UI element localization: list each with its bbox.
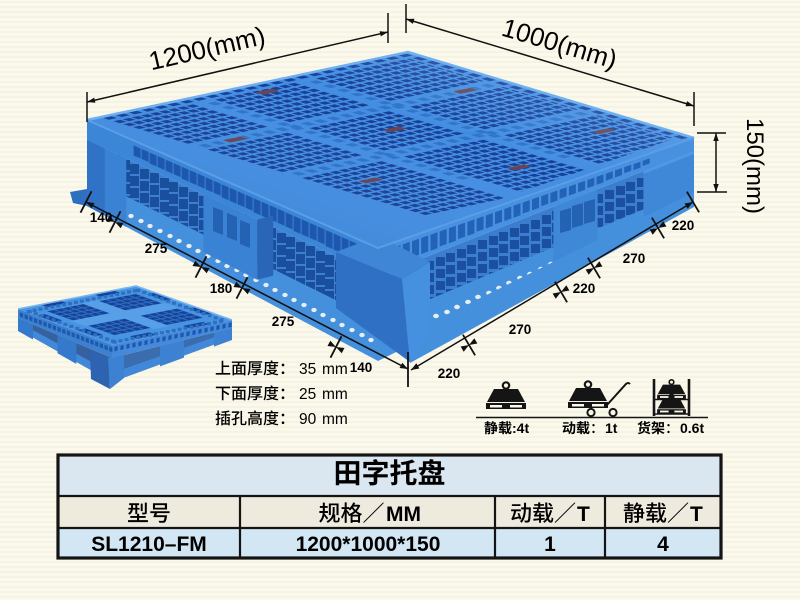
svg-text:270: 270 xyxy=(509,322,532,337)
svg-text:25: 25 xyxy=(299,386,316,403)
svg-text:140: 140 xyxy=(350,360,373,375)
svg-text:1: 1 xyxy=(544,533,556,556)
svg-text:mm: mm xyxy=(322,386,348,403)
svg-text:1t: 1t xyxy=(605,420,618,436)
svg-text:T: T xyxy=(690,503,703,526)
svg-text::4t: :4t xyxy=(512,420,529,436)
svg-text:220: 220 xyxy=(573,281,596,296)
svg-text:140: 140 xyxy=(90,210,113,225)
svg-text:4: 4 xyxy=(657,533,669,556)
svg-text:1200*1000*150: 1200*1000*150 xyxy=(296,533,441,556)
svg-text:mm: mm xyxy=(322,361,348,378)
svg-text:mm: mm xyxy=(322,411,348,428)
svg-text:270: 270 xyxy=(623,251,646,266)
svg-text:275: 275 xyxy=(145,241,168,256)
svg-text:150(mm): 150(mm) xyxy=(741,118,768,214)
svg-text:90: 90 xyxy=(299,411,317,428)
svg-text:T: T xyxy=(577,503,590,526)
svg-text:275: 275 xyxy=(272,314,295,329)
svg-text:0.6t: 0.6t xyxy=(680,420,704,436)
svg-text:35: 35 xyxy=(299,361,316,378)
svg-text:220: 220 xyxy=(672,218,695,233)
svg-text:220: 220 xyxy=(438,366,461,381)
svg-text:MM: MM xyxy=(386,503,421,526)
svg-text:180: 180 xyxy=(210,281,233,296)
svg-text:SL1210–FM: SL1210–FM xyxy=(91,533,207,556)
